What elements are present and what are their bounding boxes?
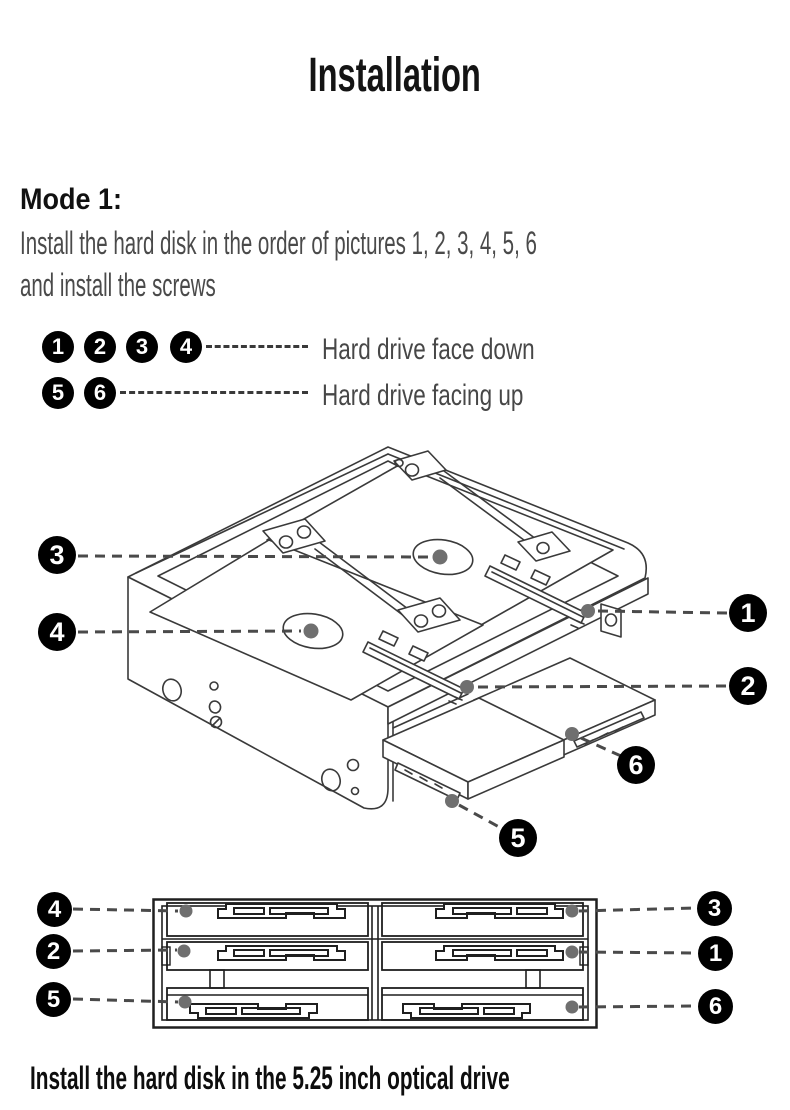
instruction-line-1: Install the hard disk in the order of pi… xyxy=(20,225,537,262)
iso-callout-badge-5: 5 xyxy=(499,819,537,857)
legend-dash-2 xyxy=(120,391,308,394)
isometric-cage-diagram xyxy=(0,430,790,870)
legend-badge-5: 5 xyxy=(42,377,74,409)
instruction-line-2: and install the screws xyxy=(20,267,216,304)
iso-callout-badge-2: 2 xyxy=(729,667,767,705)
legend-badge-6: 6 xyxy=(84,377,116,409)
front-view-diagram xyxy=(0,880,790,1060)
front-callout-badge-2: 2 xyxy=(36,934,71,969)
title-wrap: Installation xyxy=(0,48,790,103)
front-sata-connectors xyxy=(190,904,563,1018)
legend-label-facing-up: Hard drive facing up xyxy=(322,379,523,413)
manual-page: Installation Mode 1: Install the hard di… xyxy=(0,0,790,1110)
iso-callout-badge-6: 6 xyxy=(617,746,655,784)
page-title: Installation xyxy=(309,48,481,103)
iso-callout-badge-3: 3 xyxy=(38,536,76,574)
legend-label-face-down: Hard drive face down xyxy=(322,333,535,367)
front-trays xyxy=(162,903,588,1020)
legend-badge-4: 4 xyxy=(170,331,202,363)
legend-badge-2: 2 xyxy=(84,331,116,363)
legend-badge-1: 1 xyxy=(42,331,74,363)
legend-dash-1 xyxy=(206,345,308,348)
iso-callout-badge-4: 4 xyxy=(38,613,76,651)
front-callout-badge-4: 4 xyxy=(37,892,72,927)
legend-badge-3: 3 xyxy=(126,331,158,363)
mounting-tab xyxy=(601,604,621,637)
iso-callout-badge-1: 1 xyxy=(729,594,767,632)
front-callout-badge-1: 1 xyxy=(698,936,733,971)
bottom-caption: Install the hard disk in the 5.25 inch o… xyxy=(30,1060,510,1097)
front-callout-badge-6: 6 xyxy=(698,989,733,1024)
front-callout-badge-3: 3 xyxy=(697,891,732,926)
front-callout-badge-5: 5 xyxy=(36,982,71,1017)
mode-heading: Mode 1: xyxy=(20,183,122,217)
